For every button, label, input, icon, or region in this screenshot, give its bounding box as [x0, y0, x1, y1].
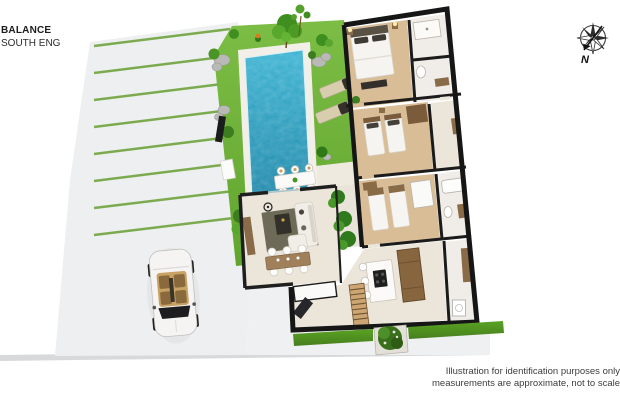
master-bed: [350, 25, 395, 80]
lamp: [393, 22, 397, 26]
closet: [410, 180, 433, 209]
disclaimer-line-1: Illustration for identification purposes…: [432, 366, 620, 378]
living-room: [240, 185, 356, 289]
compass-icon: N: [572, 14, 620, 72]
bush: [317, 147, 328, 158]
lamp: [348, 28, 352, 32]
floorplan-page: N BALANCE SOUTH ENG Illustration for ide…: [0, 0, 620, 406]
nightstand: [379, 108, 385, 113]
coffee-table: [274, 213, 292, 235]
floorplan-illustration: [0, 0, 620, 406]
toilet: [417, 66, 426, 78]
wardrobe: [406, 104, 428, 125]
washer: [453, 300, 466, 316]
bush: [325, 39, 333, 47]
project-subtitle: SOUTH ENG: [1, 37, 60, 50]
indoor-dining: [265, 245, 310, 276]
plant: [352, 96, 360, 104]
disclaimer: Illustration for identification purposes…: [432, 366, 620, 390]
header: BALANCE SOUTH ENG: [1, 24, 60, 50]
compass-north-label: N: [581, 54, 590, 66]
bush: [308, 51, 316, 59]
toilet: [444, 207, 452, 218]
planter: [374, 325, 408, 355]
bush: [209, 49, 220, 60]
flower: [256, 34, 261, 39]
project-name: BALANCE: [1, 24, 60, 37]
disclaimer-line-2: measurements are approximate, not to sca…: [432, 378, 620, 390]
bush: [229, 29, 239, 39]
